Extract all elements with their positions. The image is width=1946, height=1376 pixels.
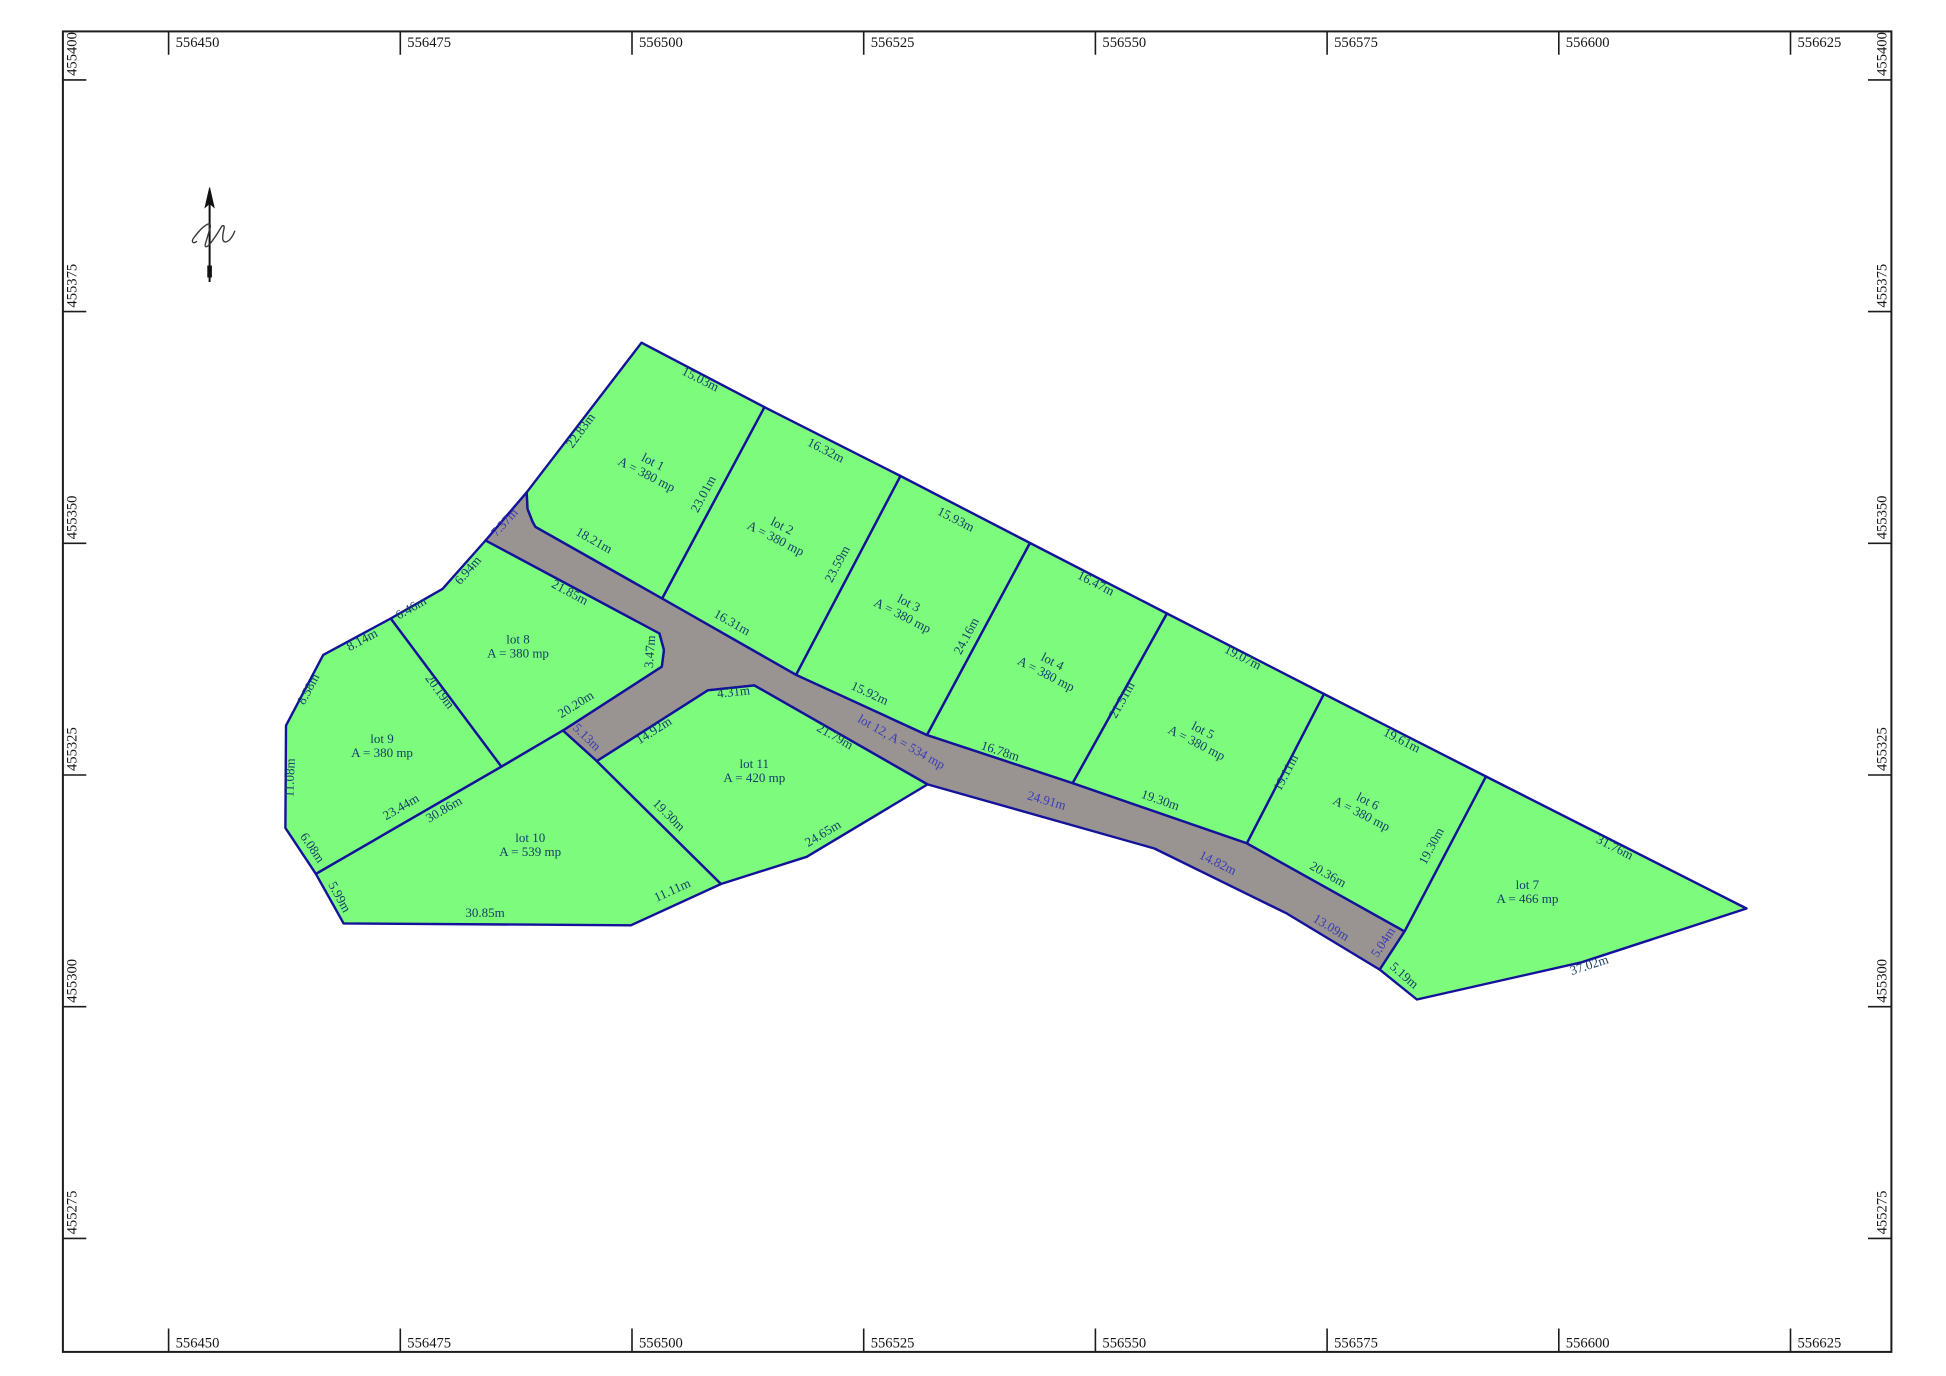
svg-text:556475: 556475	[407, 1336, 451, 1352]
svg-text:3.47m: 3.47m	[641, 635, 658, 669]
svg-text:556475: 556475	[407, 35, 451, 51]
svg-text:lot 8: lot 8	[506, 632, 529, 647]
svg-text:lot 7: lot 7	[1516, 877, 1540, 892]
svg-text:455300: 455300	[1875, 959, 1891, 1003]
svg-text:455400: 455400	[1875, 32, 1891, 76]
svg-text:A = 420 mp: A = 420 mp	[723, 770, 785, 785]
svg-text:556625: 556625	[1798, 35, 1842, 51]
svg-text:556550: 556550	[1102, 1336, 1146, 1352]
svg-text:556550: 556550	[1102, 35, 1146, 51]
svg-text:455375: 455375	[1875, 264, 1891, 308]
svg-text:455350: 455350	[1875, 496, 1891, 540]
svg-text:A = 466 mp: A = 466 mp	[1496, 891, 1558, 906]
svg-text:556600: 556600	[1566, 1336, 1610, 1352]
svg-text:455325: 455325	[65, 727, 81, 771]
svg-text:lot 11: lot 11	[740, 756, 770, 771]
svg-text:556450: 556450	[176, 35, 220, 51]
svg-text:lot 9: lot 9	[370, 731, 393, 746]
svg-text:556600: 556600	[1566, 35, 1610, 51]
svg-text:455325: 455325	[1875, 727, 1891, 771]
svg-text:556500: 556500	[639, 1336, 683, 1352]
svg-text:455375: 455375	[65, 264, 81, 308]
svg-text:556575: 556575	[1334, 35, 1378, 51]
svg-text:30.85m: 30.85m	[465, 905, 504, 920]
svg-text:556575: 556575	[1334, 1336, 1378, 1352]
svg-text:455300: 455300	[65, 959, 81, 1003]
svg-text:455400: 455400	[65, 32, 81, 76]
svg-text:A = 380 mp: A = 380 mp	[487, 646, 549, 661]
svg-text:556625: 556625	[1798, 1336, 1842, 1352]
svg-text:A = 380 mp: A = 380 mp	[351, 745, 413, 760]
svg-text:455350: 455350	[65, 496, 81, 540]
svg-text:556450: 556450	[176, 1336, 220, 1352]
svg-text:556525: 556525	[871, 1336, 915, 1352]
svg-text:556500: 556500	[639, 35, 683, 51]
svg-text:lot 10: lot 10	[515, 830, 545, 845]
svg-text:A = 539 mp: A = 539 mp	[499, 844, 561, 859]
svg-text:11.08m: 11.08m	[281, 758, 297, 797]
svg-text:455275: 455275	[1875, 1191, 1891, 1235]
svg-text:556525: 556525	[871, 35, 915, 51]
svg-text:455275: 455275	[65, 1191, 81, 1235]
